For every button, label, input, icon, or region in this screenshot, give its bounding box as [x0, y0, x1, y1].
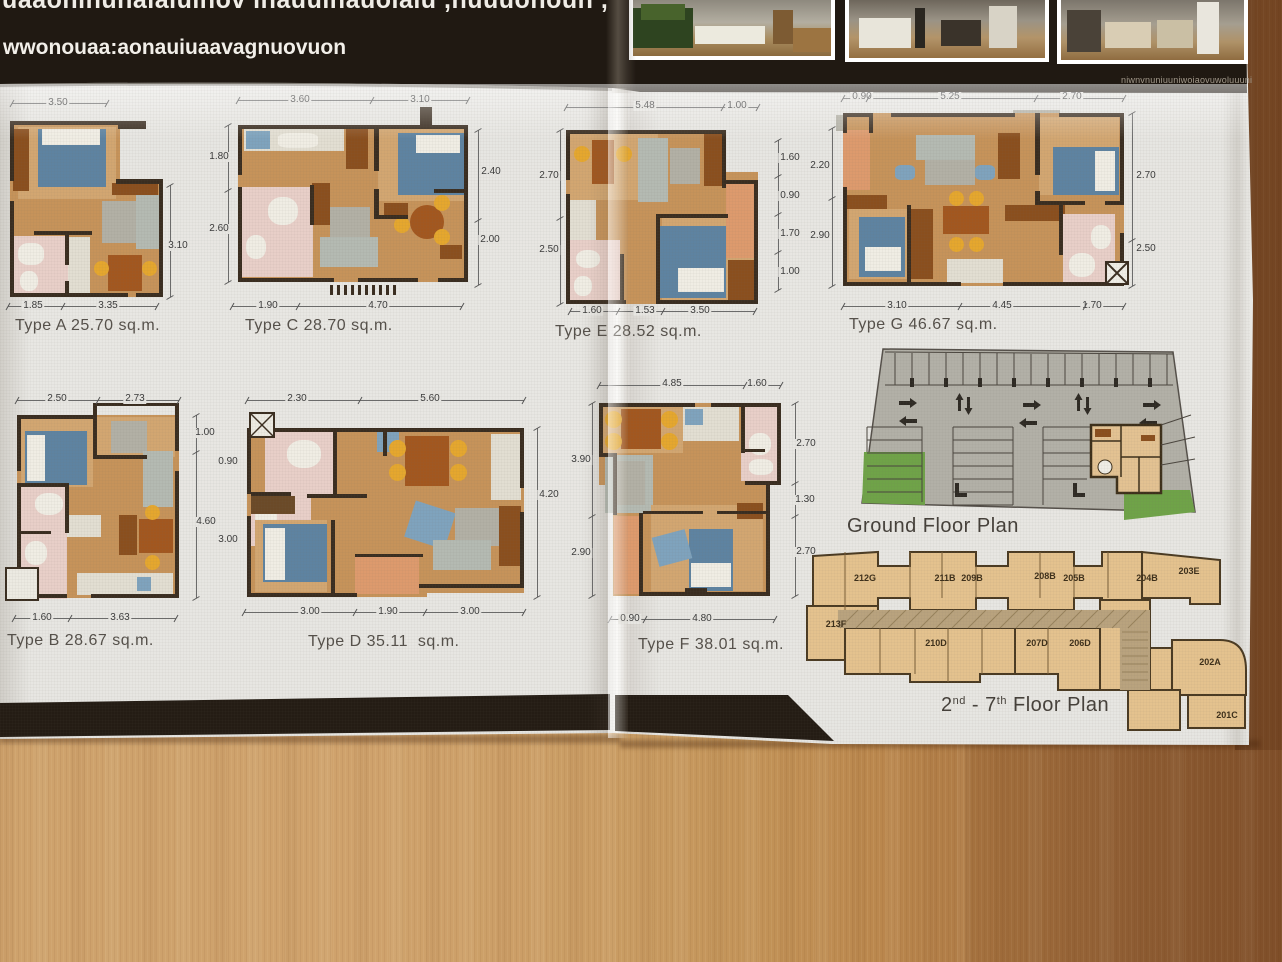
svg-text:209B: 209B [961, 573, 983, 583]
svg-text:204B: 204B [1136, 573, 1158, 583]
svg-text:207D: 207D [1026, 638, 1048, 648]
svg-text:212G: 212G [854, 573, 876, 583]
svg-text:213F: 213F [826, 619, 847, 629]
svg-text:202A: 202A [1199, 657, 1221, 667]
svg-text:201C: 201C [1216, 710, 1238, 720]
svg-text:205B: 205B [1063, 573, 1085, 583]
svg-text:206D: 206D [1069, 638, 1091, 648]
svg-text:208B: 208B [1034, 571, 1056, 581]
svg-text:210D: 210D [925, 638, 947, 648]
svg-text:211B: 211B [934, 573, 956, 583]
svg-text:203E: 203E [1178, 566, 1199, 576]
